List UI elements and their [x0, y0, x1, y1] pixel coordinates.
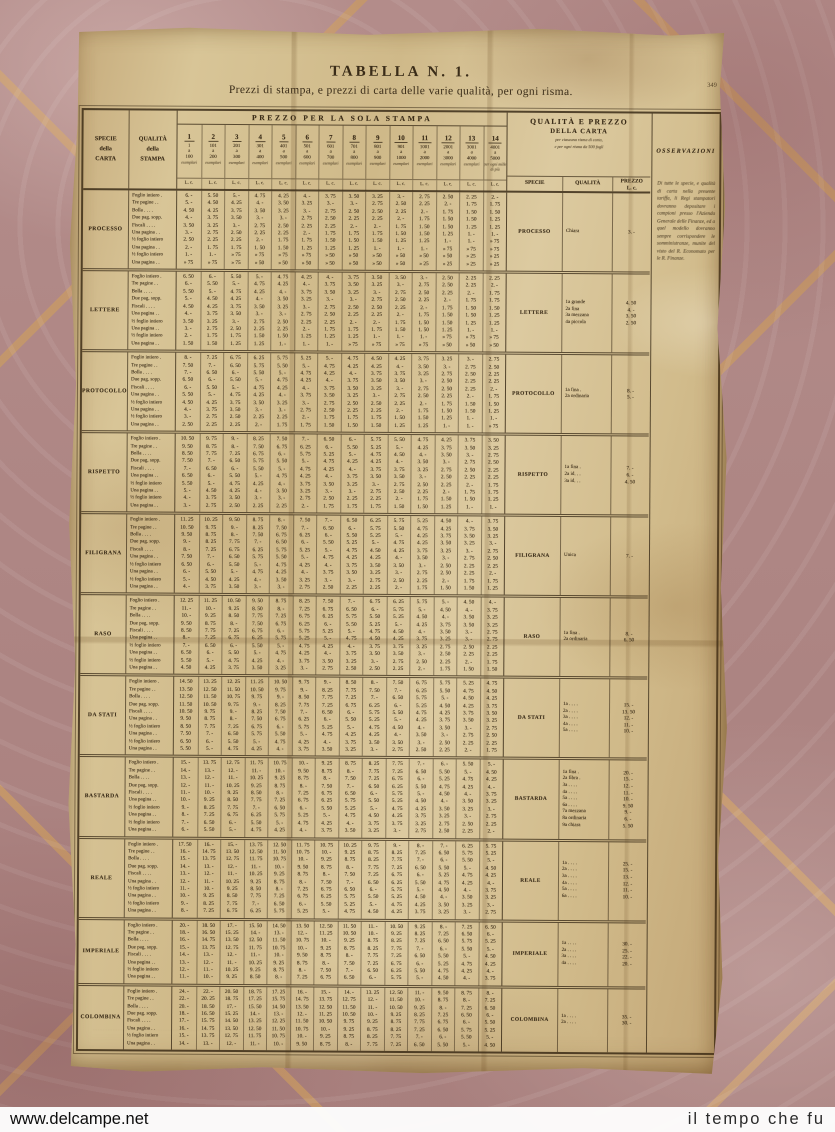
price-cell: 2. 75 [318, 400, 341, 408]
price-cell: 4. 25 [456, 880, 479, 888]
price-cell: 5. 25 [292, 813, 315, 821]
row-label: Una pagina . . [129, 635, 172, 643]
price-cell: 6. 50 [176, 377, 200, 385]
price-cell: 18. 50 [197, 922, 220, 930]
price-cell: 3. - [246, 584, 269, 592]
price-columns: 14. 5013. 5012. 5011. 5010. 509. 508. 50… [173, 677, 503, 757]
price-cell: 12. 25 [175, 598, 199, 606]
price-column: 6. 255. 755. 505. -4. 754. 253. 503. -2.… [246, 353, 270, 431]
price-cell: » 50 [272, 260, 295, 268]
price-column: 9. -8. 257. 757. 256. 756. 255. 755. 254… [384, 840, 408, 918]
price-cell: 4. 25 [457, 784, 480, 792]
price-cell: 4. 25 [340, 555, 363, 563]
price-cell: 9. 25 [199, 613, 222, 621]
show-through-ghost-print: . . . . . . . . . . . . . . . . . . . . … [93, 1026, 687, 1052]
price-cell: 4. 25 [341, 459, 364, 467]
price-cell: 4. 25 [365, 363, 388, 371]
price-cell: 10. 50 [176, 436, 200, 444]
carta-species-label: RASO [504, 634, 559, 640]
price-cell: 4. 75 [455, 961, 478, 969]
price-cell: 6. 50 [479, 1005, 502, 1013]
price-cell: 3. 25 [432, 909, 455, 917]
price-cell: 3. - [270, 584, 293, 592]
price-column: 5. 505. -4. 754. 254. -3. 503. 253. -2. … [455, 760, 479, 838]
carta-mini-cell: PROCESSOChiara3. - [506, 193, 650, 272]
price-cell: 9. 25 [269, 775, 292, 783]
price-cell: 3. 25 [481, 622, 504, 630]
price-cell: 9. 25 [220, 974, 243, 982]
price-cell: 2. 50 [340, 666, 363, 674]
price-cell: 6. - [198, 738, 221, 746]
price-cell: 1. 50 [434, 585, 457, 593]
price-cell: 6. 50 [341, 518, 364, 526]
price-cell: 5. 50 [456, 858, 479, 866]
row-label: Due pag. sopp. [132, 215, 175, 223]
price-cell: 3. - [224, 318, 247, 326]
price-column: 10. 7510. -9. 258. 758. -7. 506. 756. 25… [314, 840, 338, 918]
price-cell: 4. 25 [389, 356, 412, 364]
price-column: 7. 256. 505. 755. 505. -4. 754. 254. - [454, 922, 478, 985]
price-cell: 1. 50 [459, 312, 482, 320]
price-cell: 1. 50 [460, 217, 483, 225]
price-cell: 20. 25 [197, 996, 220, 1004]
price-cell: 3. 75 [481, 703, 504, 711]
price-cell: » 75 [483, 239, 506, 247]
price-cell: 5. 25 [433, 776, 456, 784]
price-cell: 4. 25 [412, 445, 435, 453]
price-cell: 3. 50 [225, 215, 248, 223]
price-cell: 1. 25 [435, 504, 458, 512]
price-cell: » 75 [412, 342, 435, 350]
price-column: 9. -8. 257. 757. 256. 506. -5. 254. 754.… [315, 678, 339, 756]
price-cell: 4. 25 [480, 777, 503, 785]
carta-note-line2: e per ogni risma da 500 fogli [507, 144, 650, 150]
price-cell: 7. 25 [198, 812, 221, 820]
price-cell: 7. 75 [316, 695, 339, 703]
price-cell: 1. - [460, 239, 483, 247]
price-cell: 1. 25 [342, 334, 365, 342]
price-cell: 3. 50 [388, 474, 411, 482]
price-cell: 8. - [223, 620, 246, 628]
price-cell: 6. - [316, 717, 339, 725]
price-cell: 1. 75 [224, 333, 247, 341]
row-label: Bolla . . . . [128, 856, 171, 864]
price-cell: 1. - [435, 423, 458, 431]
price-cell: 3. 75 [319, 282, 342, 290]
price-cell: 3. 75 [409, 813, 432, 821]
price-cell: 7. - [294, 525, 317, 533]
price-cell: 1. 75 [295, 238, 318, 246]
price-cell: 6. 75 [291, 894, 314, 902]
price-cell: 9. - [224, 436, 247, 444]
price-cell: 1. 50 [458, 585, 481, 593]
price-cell: 1. 75 [458, 578, 481, 586]
price-column: 2. 502. 502. 252. -1. 751. 501. 501. 25»… [435, 273, 459, 351]
price-cell: 6. 25 [387, 599, 410, 607]
price-cell: 2. 50 [389, 297, 412, 305]
carta-quality-cell: 1a grande2a fina3a mezzana4a piccola [561, 274, 611, 352]
price-cell: 5. 75 [480, 843, 503, 851]
price-column: 7. -6. 505. 755. 505. -4. 754. -3. 753. … [339, 597, 363, 675]
price-cell: 6. 50 [432, 939, 455, 947]
price-cell: 6. 25 [315, 798, 338, 806]
species-label: BASTARDA [79, 794, 124, 800]
price-cell: 6. 50 [224, 458, 247, 466]
price-cell: 14. 75 [197, 937, 220, 945]
price-cell: 8. - [363, 680, 386, 688]
price-cell: 2. 50 [412, 393, 435, 401]
price-cell: 6. - [341, 437, 364, 445]
price-column: 3. 753. 503. 253. -2. 752. 502. -1. 751.… [411, 354, 435, 432]
species-label: DA STATI [80, 712, 125, 718]
price-cell: 1. 25 [435, 416, 458, 424]
price-cell: 7. 50 [271, 436, 294, 444]
carta-mini-cell: RISPETTO1a fina .2a id. . .3a id. . .7. … [504, 436, 648, 515]
price-cell: 5. - [200, 480, 223, 488]
price-cell: 2. 50 [434, 651, 457, 659]
price-cell: 7. 50 [176, 458, 200, 466]
price-cell: 5. 25 [341, 540, 364, 548]
price-cell: 9. - [386, 842, 409, 850]
price-cell: 3. 25 [293, 577, 316, 585]
price-cell: 3. 75 [317, 570, 340, 578]
price-cell: 15. 50 [244, 923, 267, 931]
price-column: 6. 506. -5. 255. -4. 504. 254. -3. 75 [478, 922, 502, 985]
price-cell: 2. 25 [411, 578, 434, 586]
column-number: 11 [418, 134, 431, 143]
price-cell: 7. 25 [270, 613, 293, 621]
price-cell: 6. 25 [364, 518, 387, 526]
price-column: 4. 754. 254. -3. 503. 253. -2. 502. 251.… [410, 435, 434, 513]
price-cell: 2. 25 [433, 747, 456, 755]
price-column: 3. 753. -2. 752. 502. 251. 751. 501. 25»… [318, 192, 342, 270]
price-cell: 13. - [197, 952, 220, 960]
price-cell: 3. 25 [481, 615, 504, 623]
price-cell: 2. 25 [457, 740, 480, 748]
price-cell: 4. 25 [294, 474, 317, 482]
price-cell: 3. - [249, 215, 272, 223]
price-cell: 12. - [221, 952, 244, 960]
price-cell: 2. 75 [366, 297, 389, 305]
price-cell: 6. - [433, 762, 456, 770]
price-cell: 1. 25 [388, 423, 411, 431]
row-label: Una pagina . . [132, 259, 175, 267]
price-cell: 7. 25 [385, 953, 408, 961]
price-cell: 4. 75 [456, 872, 479, 880]
price-cell: 5. 50 [176, 392, 200, 400]
price-cell: 2. 50 [436, 379, 459, 387]
price-cell: 11. 50 [338, 923, 361, 931]
price-cell: 1. - [436, 239, 459, 247]
print-quality-cell: Foglio intiero .Tre pagine . .Bolla . . … [128, 190, 176, 268]
price-cell: 1. - [177, 252, 201, 260]
price-cell: 2. - [483, 283, 506, 291]
carta-quality-line: 3a id. . . [564, 479, 610, 486]
price-cell: » 75 [389, 342, 412, 350]
print-quality-cell: Foglio intiero .Tre pagine . .Bolla . . … [124, 839, 172, 917]
price-cell: 6. - [294, 540, 317, 548]
price-cell: 11. 75 [292, 842, 315, 850]
price-cell: 3. - [343, 201, 366, 209]
price-cell: 9. 25 [408, 1005, 431, 1013]
price-cell: 7. 25 [201, 355, 224, 363]
price-cell: 4. 25 [435, 437, 458, 445]
price-cell: 3. 75 [435, 445, 458, 453]
price-cell: 8. - [174, 635, 198, 643]
carta-species-cell: DA STATI [504, 679, 559, 757]
price-cell: 7. 50 [246, 621, 269, 629]
price-cell: 2. 25 [364, 496, 387, 504]
price-cell: 3. 75 [479, 976, 502, 984]
price-cell: 5. - [221, 827, 244, 835]
price-cell: 3. 50 [412, 364, 435, 372]
price-cell: 7. 25 [268, 894, 291, 902]
price-cell: 10. 50 [223, 598, 246, 606]
price-cell: 5. 75 [339, 798, 362, 806]
species-cell: IMPERIALE [78, 920, 123, 984]
price-cell: 6. 50 [270, 540, 293, 548]
price-cell: 11. 25 [246, 679, 269, 687]
row-label: Una pagina . . [127, 974, 170, 982]
unit-cell: L. c. [271, 179, 295, 190]
price-cell: 2. 50 [433, 828, 456, 836]
price-cell: 3. 50 [387, 651, 410, 659]
price-cell: » 75 [459, 335, 482, 343]
price-cell: 2. 50 [410, 747, 433, 755]
print-quality-cell: Foglio intiero .Tre pagine . .Bolla . . … [124, 758, 172, 836]
price-cell: 5. - [175, 576, 199, 584]
price-cell: 4. 50 [409, 799, 432, 807]
osservazioni-text: Di tutte le specie, e qualità di carta n… [657, 181, 716, 264]
price-cell: 6. 25 [386, 784, 409, 792]
price-cell: 3. 25 [480, 799, 503, 807]
price-cell: 3. 50 [386, 740, 409, 748]
row-label: Foglio intiero . [129, 760, 172, 768]
price-cell: 6. 75 [224, 355, 247, 363]
species-cell: REALE [79, 839, 124, 917]
price-cell: 3. 75 [339, 739, 362, 747]
price-cell: 3. 50 [177, 222, 201, 230]
price-cell: 15. - [174, 760, 198, 768]
price-cell: 3. 75 [200, 495, 223, 503]
price-cell: 6. - [408, 961, 431, 969]
price-cell: 3. 25 [271, 400, 294, 408]
price-cell: 4. 25 [223, 576, 246, 584]
carta-price-line: 3. - [613, 229, 650, 236]
price-cell: 7. - [201, 362, 224, 370]
price-cell: 8. 25 [247, 436, 270, 444]
price-cell: 7. - [317, 518, 340, 526]
price-cell: 6. 75 [385, 961, 408, 969]
price-cell: 3. 25 [482, 445, 505, 453]
carta-species-label: FILIGRANA [505, 553, 560, 559]
print-quality-cell: Foglio intiero .Tre pagine . .Bolla . . … [123, 920, 171, 984]
price-cell: 4. 25 [363, 732, 386, 740]
carta-quality-cell: 1a fina .2a id. . .3a id. . . [560, 436, 610, 514]
price-cell: 10. - [173, 893, 197, 901]
price-cell: 1. 50 [388, 504, 411, 512]
row-label: Una pagina . . [130, 502, 173, 510]
carta-species-cell: FILIGRANA [505, 517, 560, 595]
qualita-e-prezzo-title: QUALITÀ E PREZZO [508, 117, 651, 127]
price-cell: 5. - [480, 762, 503, 770]
price-cell: 2. 50 [481, 556, 504, 564]
row-label: Due pag. sopp. [131, 377, 174, 385]
price-column: 9. 759. -8. 507. 757. -6. 255. 755. -4. … [291, 678, 315, 756]
price-cell: 9. - [269, 694, 292, 702]
price-cell: 1. - [295, 341, 318, 349]
price-cell: 8. - [173, 812, 197, 820]
price-cell: 5. - [293, 555, 316, 563]
price-cell: 4. 50 [411, 614, 434, 622]
osservazioni-header: OSSERVAZIONI [652, 148, 719, 155]
price-cell: 1. 25 [482, 497, 505, 505]
column-number: 8 [349, 134, 359, 143]
column-number: 4 [256, 133, 266, 142]
price-cell: 6. 25 [292, 717, 315, 725]
column-number: 6 [303, 133, 313, 142]
carta-species-cell: RASO [504, 598, 559, 676]
price-cell: 1. 50 [341, 422, 364, 430]
price-cell: 16. - [198, 841, 221, 849]
price-column: 11. 2510. 509. 759. -8. 257. 506. 755. 7… [244, 677, 268, 755]
price-column: 10. -9. 508. 758. -7. 256. 756. -5. 254.… [291, 759, 315, 837]
price-column: 2. 752. 252. -1. 751. 501. 501. 251. -» … [412, 192, 436, 270]
price-cell: 17. - [172, 1018, 196, 1026]
price-cell: 3. 75 [341, 474, 364, 482]
price-column: 4. 754. 254. -3. 753. 503. 252. 502. 251… [340, 354, 364, 432]
price-cell: 17. 50 [173, 841, 197, 849]
price-cell: 1. 75 [460, 202, 483, 210]
copies-column-header: 3201a300esemplari [224, 125, 248, 178]
price-cell: 4. 25 [268, 827, 291, 835]
carta-species-cell: PROCESSO [507, 193, 562, 271]
price-cell: 3. 25 [433, 813, 456, 821]
lire-centesimi-unit-row: L. c.L. c.L. c.L. c.L. c.L. c.L. c.L. c.… [177, 178, 506, 192]
price-cell: 2. - [457, 747, 480, 755]
price-cell: 1. - [458, 504, 481, 512]
price-cell: 8. 75 [385, 1019, 408, 1027]
unit-cell: L. c. [248, 179, 272, 190]
price-cell: 2. 75 [248, 319, 271, 327]
carta-species-cell: LETTERE [506, 274, 561, 352]
price-cell: 7. - [410, 762, 433, 770]
price-cell: 2. 25 [270, 503, 293, 511]
price-cell: 10. 50 [385, 1005, 408, 1013]
price-cell: 1. 50 [388, 415, 411, 423]
price-column: 8. 257. 757. 256. 506. -5. 505. -4. 503.… [361, 759, 385, 837]
price-cell: 5. - [408, 975, 431, 983]
price-cell: » 75 [248, 252, 271, 260]
price-cell: 4. 50 [202, 200, 225, 208]
row-label: Due pag. sopp. [132, 296, 175, 304]
row-label: Una pagina . . [131, 310, 174, 318]
price-cell: 1. 25 [318, 334, 341, 342]
price-cell: 2. 25 [340, 585, 363, 593]
price-cell: 6. - [318, 444, 341, 452]
price-cell: 2. 50 [387, 577, 410, 585]
price-cell: 6. - [341, 525, 364, 533]
price-cell: 2. 75 [411, 570, 434, 578]
price-cell: 8. - [316, 776, 339, 784]
price-column: 9. 508. 507. 757. 506. 756. 255. 505. -4… [245, 596, 269, 674]
range-caption: esemplari [249, 161, 272, 166]
price-cell: 6. 25 [317, 614, 340, 622]
price-cell: 9. 25 [245, 783, 268, 791]
price-cell: 1. 50 [248, 333, 271, 341]
price-cell: 8. 25 [385, 938, 408, 946]
table-left-section: SPECIE della CARTA QUALITÀ della STAMPA … [78, 110, 651, 1053]
price-cell: » 50 [295, 260, 318, 268]
price-cell: 14. 75 [291, 997, 314, 1005]
unit-cell: L. c. [389, 180, 413, 191]
price-cell: 7. 25 [362, 872, 385, 880]
price-cell: 5. 75 [434, 681, 457, 689]
row-label: Una pagina . . [128, 826, 171, 834]
carta-species-cell: RISPETTO [505, 436, 560, 514]
carta-mini-cell: PROTOCOLLO1a fina .2a ordinaria8. -5. - [505, 355, 649, 434]
price-cell: 2. 50 [410, 659, 433, 667]
carta-price-cell: 25. -15. -13. -12. -11. -10. - [608, 842, 646, 920]
price-cell: 12. - [197, 959, 220, 967]
price-cell: 1. 75 [201, 333, 224, 341]
price-cell: 6. 50 [174, 738, 198, 746]
price-cell: 7. 50 [245, 716, 268, 724]
price-cell: 13. 75 [245, 842, 268, 850]
row-label: Una pagina . . [131, 421, 174, 429]
carta-mini-cell: IMPERIALE1a . . . .2a . . . .3a . . . .4… [501, 922, 645, 986]
price-cell: 11. 50 [338, 1004, 361, 1012]
price-cell: 3. - [459, 356, 482, 364]
price-cell: 1. - [459, 423, 482, 431]
price-cell: 3. 25 [366, 282, 389, 290]
price-cell: 1. 50 [319, 238, 342, 246]
carta-quality-line: Chiara [566, 229, 612, 236]
price-columns: 17. 5016. -15. -14. -13. -12. -11. -10. … [172, 839, 502, 919]
price-columns: 15. -14. -13. -12. -11. -10. -9. -8. -7.… [172, 758, 502, 838]
price-cell: 10. 25 [244, 960, 267, 968]
price-column: 12. 2511. 5010. 759. 759. -8. -7. 256. 5… [221, 677, 245, 755]
price-cell: 4. 50 [409, 894, 432, 902]
price-column: 9. -8. -7. 256. 506. -5. 504. 754. 253. … [222, 434, 246, 512]
price-cell: 7. 75 [386, 761, 409, 769]
row-label: ½ foglio intiero [131, 318, 174, 326]
price-cell: 11. 50 [291, 1019, 314, 1027]
document-title: TABELLA N. 1. [69, 62, 733, 83]
price-cell: 7. 75 [386, 857, 409, 865]
price-cell: 3. 50 [411, 555, 434, 563]
price-cell: 11. 75 [245, 761, 268, 769]
price-cell: 5. 75 [338, 894, 361, 902]
price-cell: 4. 75 [316, 732, 339, 740]
price-cell: 3. 50 [365, 378, 388, 386]
price-cell: 2. 75 [480, 814, 503, 822]
watermark-left: www.delcampe.net [10, 1110, 149, 1129]
table-band: REALEFoglio intiero .Tre pagine . .Bolla… [79, 836, 646, 921]
price-cell: » 50 [436, 342, 459, 350]
price-cell: 1. 75 [480, 748, 503, 756]
price-cell: 4. - [387, 555, 410, 563]
price-cell: 11. 50 [199, 694, 222, 702]
row-label: Una pagina . . [129, 745, 172, 753]
price-cell: 4. - [432, 895, 455, 903]
price-column: 2. -1. 751. 501. 251. 251. -» 75» 75» 25… [482, 193, 506, 271]
price-cell: » 50 [436, 253, 459, 261]
price-cell: 6. 75 [271, 444, 294, 452]
price-cell: 7. 75 [223, 539, 246, 547]
price-cell: 1. 75 [484, 202, 507, 210]
price-cell: 4. - [295, 282, 318, 290]
